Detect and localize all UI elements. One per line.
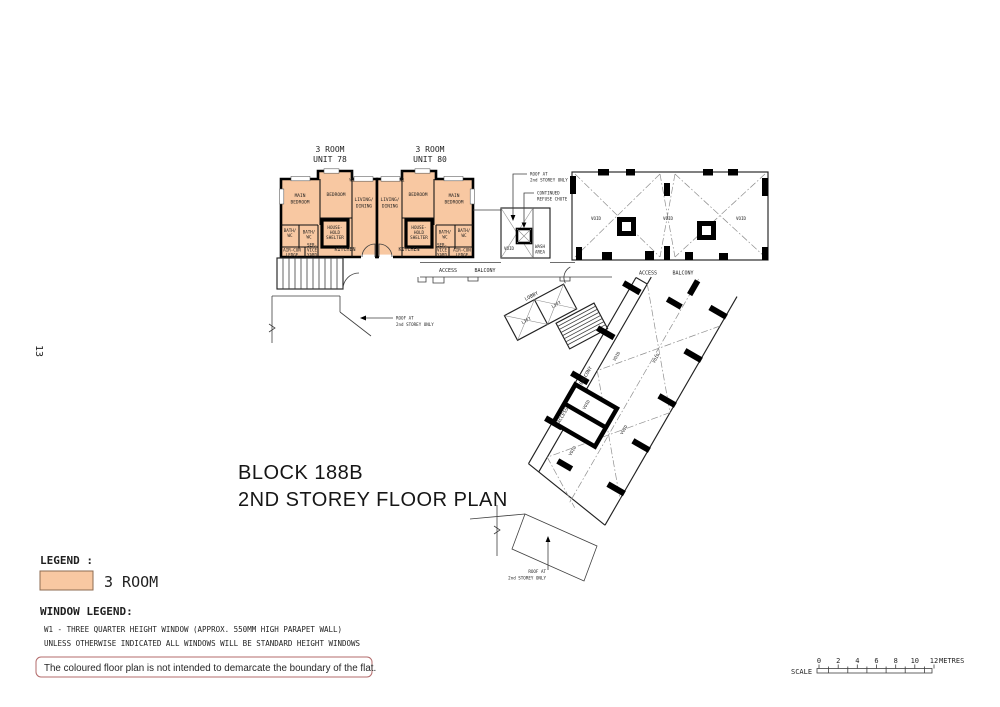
plan-title-line1: BLOCK 188B (238, 462, 363, 484)
main-bedroom-label: MAIN (295, 193, 306, 199)
void-label: VOID (504, 246, 515, 251)
service-yard-label: YARD (437, 253, 448, 258)
main-bedroom-label: BEDROOM (291, 200, 310, 206)
scale-tick: 4 (855, 657, 859, 665)
living-dining-label: DINING (382, 204, 399, 210)
window-legend-line1: W1 - THREE QUARTER HEIGHT WINDOW (APPROX… (44, 625, 342, 634)
scale-tick: 6 (874, 657, 878, 665)
household-shelter-label: SHELTER (410, 235, 428, 240)
plan-title-line2: 2ND STOREY FLOOR PLAN (238, 489, 508, 511)
disclaimer-note: The coloured floor plan is not intended … (36, 657, 376, 677)
lift-label: LIFT (551, 300, 563, 309)
floor-plan-sheet: 3 ROOM UNIT 78 3 ROOM UNIT 80 MAIN BEDRO… (0, 0, 1000, 707)
main-bedroom-label: MAIN (449, 193, 460, 199)
scale-tick: 12 (930, 657, 938, 665)
unit-80-title-line2: UNIT 80 (413, 155, 447, 164)
main-bedroom-label: BEDROOM (445, 200, 464, 206)
unit-80-title-line1: 3 ROOM (416, 145, 445, 154)
void-label: VOID (612, 350, 622, 362)
void-label: VOID (736, 216, 747, 221)
scale-tick: 2 (836, 657, 840, 665)
refuse-chute-note: REFUSE CHUTE (537, 197, 568, 202)
window-legend-heading: WINDOW LEGEND: (40, 605, 133, 618)
bath-wc-label: WC (306, 235, 312, 240)
roof-note: 2nd STOREY ONLY (508, 576, 546, 581)
refuse-chute-note: CONTINUED (537, 191, 560, 196)
access-label: ACCESS (439, 268, 457, 274)
void-label: VOID (591, 216, 602, 221)
refuse-wash-block: VOID WASH AREA ROOF AT 2nd STOREY ONLY C… (473, 172, 568, 259)
legend: LEGEND : 3 ROOM (40, 554, 158, 591)
living-dining-label: DINING (356, 204, 373, 210)
service-yard-label: YARD (307, 253, 318, 258)
main-void-block: VOID VOID VOID (570, 169, 768, 260)
kitchen-label: KITCHEN (398, 247, 419, 253)
scale-tick: 8 (894, 657, 898, 665)
void-label: VOID (619, 424, 629, 436)
access-balcony-corridor: ACCESS BALCONY ACCESS BALCONY (418, 263, 694, 284)
roof-note: ROOF AT (530, 172, 548, 177)
scale-bar: SCALE 0 2 4 6 8 10 12 METRES (791, 657, 964, 676)
page-number: 13 (33, 345, 44, 357)
unit-80-plan (377, 169, 474, 259)
roof-note: ROOF AT (528, 569, 546, 574)
unit-78-title-line2: UNIT 78 (313, 155, 347, 164)
aircon-ledge-label: LEDGE (286, 253, 299, 258)
roof-note: 2nd STOREY ONLY (530, 178, 568, 183)
lift-label: LIFT (521, 316, 533, 325)
bedroom-label: BEDROOM (327, 192, 346, 198)
left-roof-outline: ROOF AT 2nd STOREY ONLY (269, 296, 434, 343)
kitchen-label: KITCHEN (334, 247, 355, 253)
scale-label: SCALE (791, 668, 812, 676)
aircon-ledge-label: LEDGE (456, 253, 469, 258)
household-shelter-label: SHELTER (326, 235, 344, 240)
unit-78-title-line1: 3 ROOM (316, 145, 345, 154)
window-legend-line2: UNLESS OTHERWISE INDICATED ALL WINDOWS W… (44, 639, 361, 648)
balcony-label: BALCONY (672, 271, 693, 277)
void-label: VOID (663, 216, 674, 221)
access-label: ACCESS (639, 271, 657, 277)
living-dining-label: LIVING/ (355, 197, 374, 203)
diagonal-wing: VOID VOID VOID VOID VOID ACCESS BALCONY (514, 244, 738, 526)
bath-wc-label: WC (442, 235, 448, 240)
roof-note: 2nd STOREY ONLY (396, 322, 434, 327)
bottom-roof-outline: ROOF AT 2nd STOREY ONLY (470, 505, 597, 581)
window-legend: WINDOW LEGEND: W1 - THREE QUARTER HEIGHT… (40, 605, 361, 648)
wash-area-label: WASH (535, 244, 546, 249)
lift-lobby: LOBBY LIFT LIFT (499, 265, 608, 368)
bedroom-label: BEDROOM (409, 192, 428, 198)
bath-wc-label: WC (461, 233, 467, 238)
left-staircase (277, 258, 359, 289)
void-label: VOID (568, 445, 578, 457)
scale-tick: 0 (817, 657, 821, 665)
legend-swatch-3room (40, 571, 93, 590)
legend-heading: LEGEND : (40, 554, 93, 567)
roof-note: ROOF AT (396, 316, 414, 321)
window-mark-w1: W1 (349, 178, 355, 183)
window-mark-w1: W1 (399, 178, 405, 183)
living-dining-label: LIVING/ (381, 197, 400, 203)
scale-unit: METRES (939, 657, 964, 665)
balcony-label: BALCONY (474, 268, 495, 274)
floor-plan-drawing: 3 ROOM UNIT 78 3 ROOM UNIT 80 MAIN BEDRO… (0, 0, 1000, 707)
scale-tick: 10 (911, 657, 919, 665)
unit-78-plan (280, 169, 377, 259)
disclaimer-text: The coloured floor plan is not intended … (44, 663, 376, 674)
legend-item-label: 3 ROOM (104, 573, 158, 591)
wash-area-label: AREA (535, 250, 546, 255)
bath-wc-label: WC (287, 233, 293, 238)
